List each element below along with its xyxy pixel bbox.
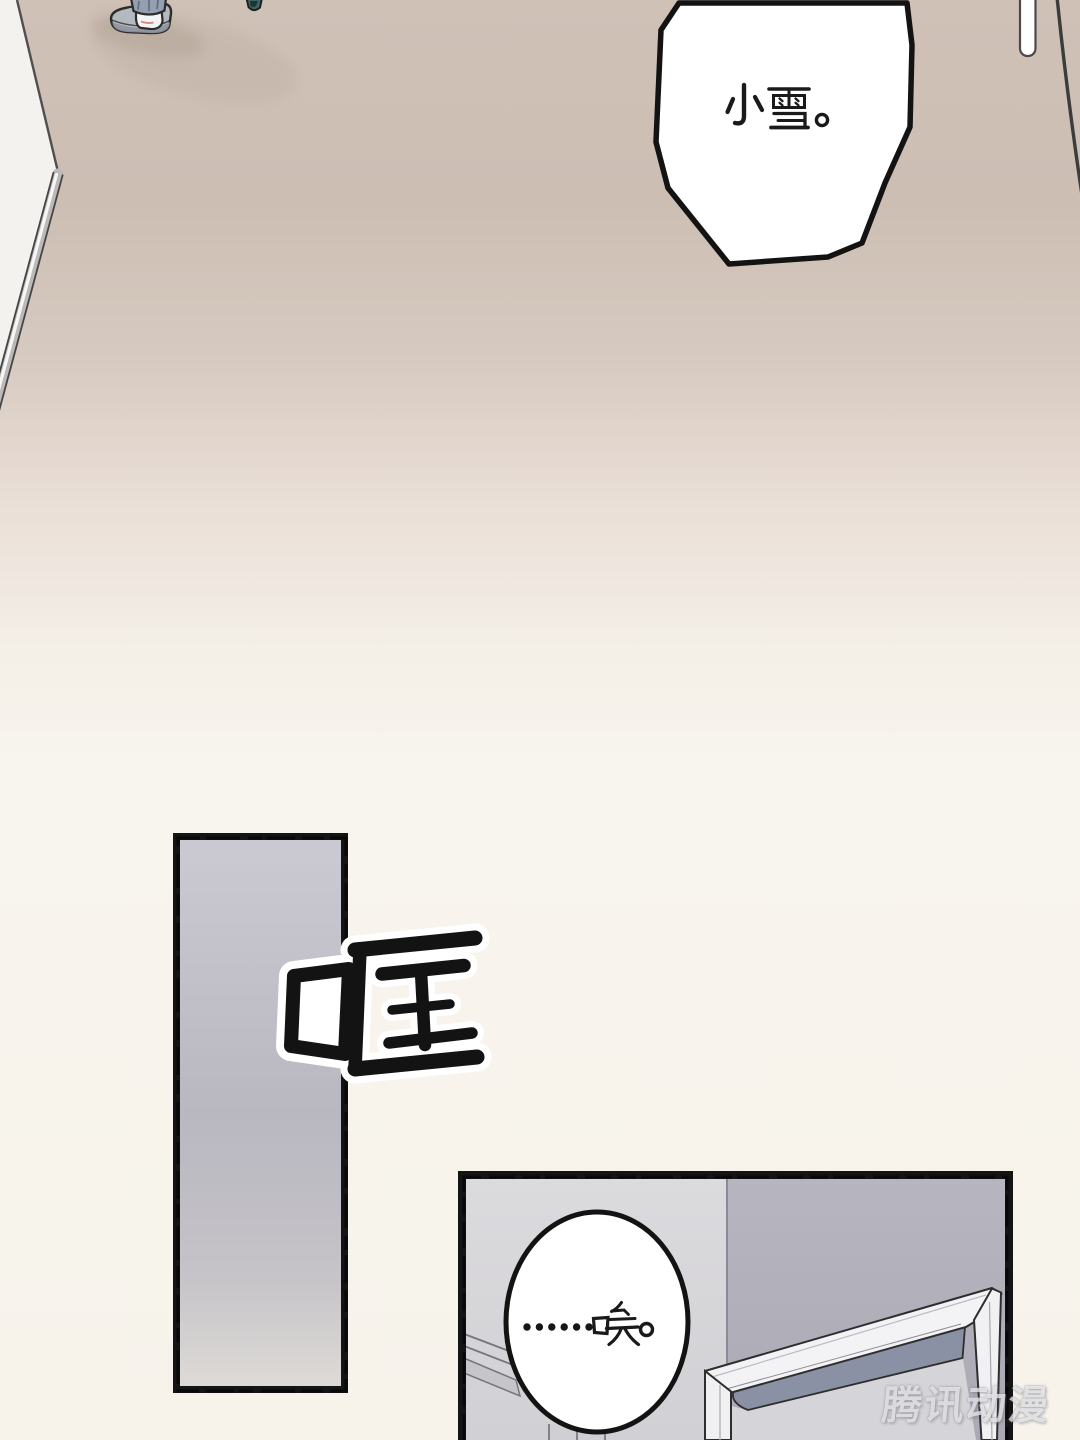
wall-corner <box>0 0 63 416</box>
speech-bubble-top <box>656 3 912 264</box>
bubble-outline <box>506 1212 688 1432</box>
character-feet <box>84 0 306 120</box>
bubble-outline <box>656 3 912 264</box>
pant-cuff <box>131 0 166 15</box>
second-shoe-tip <box>247 0 263 10</box>
comic-scene <box>0 0 1080 1440</box>
comic-page: 腾讯动漫 小雪。 哐 ……唉。 <box>0 0 1080 1440</box>
comic-panel-vertical <box>177 837 347 1392</box>
speech-bubble-bottom <box>506 1212 688 1432</box>
watermark-tencent: 腾讯动漫 <box>880 1386 1051 1426</box>
door-edge-strip <box>1020 0 1036 56</box>
wall-line-top-right <box>1057 0 1080 195</box>
